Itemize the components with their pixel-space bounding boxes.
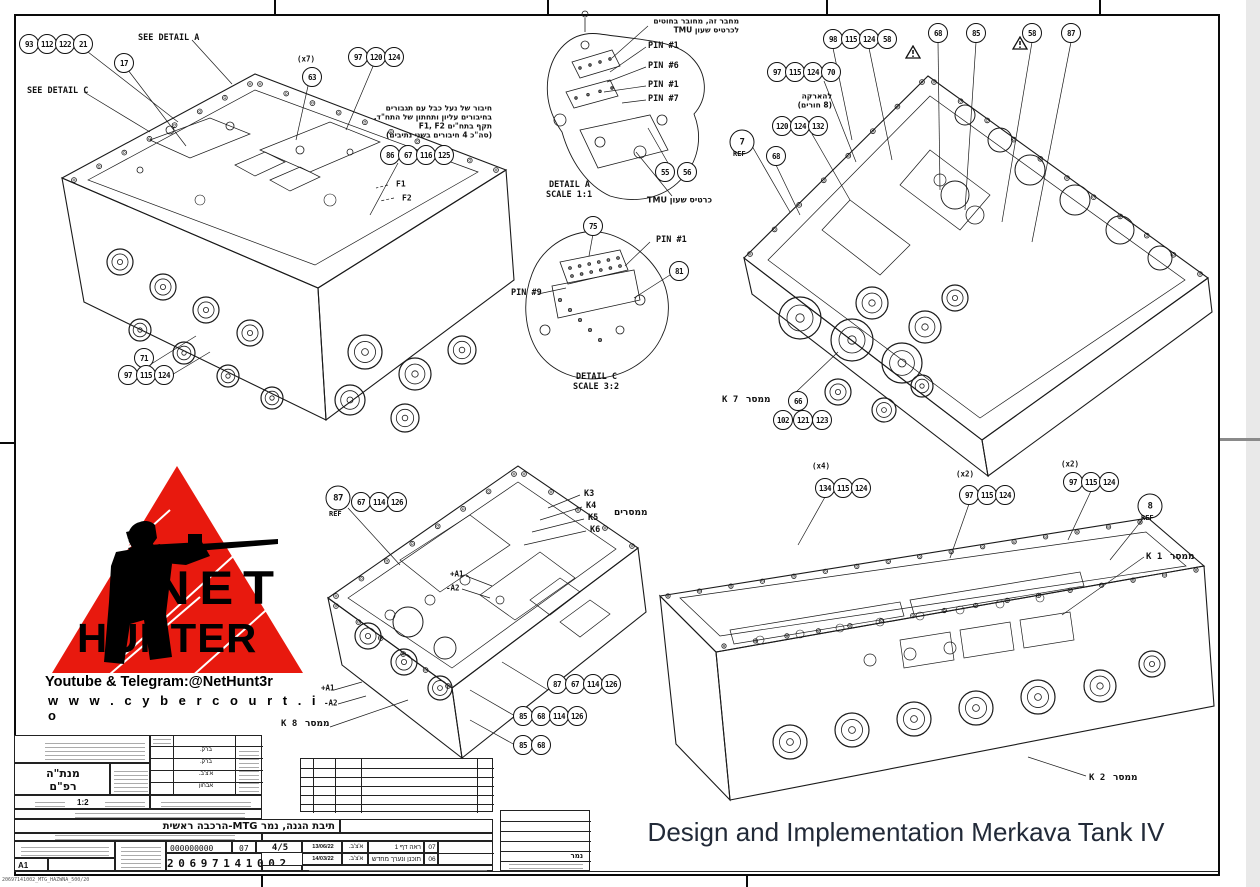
hebrew-annotation: בחיבורים עליון ותחתון של התח"ד. xyxy=(374,113,492,122)
callout-balloon: 115 xyxy=(1081,472,1101,492)
callout-balloon: 85 xyxy=(966,23,986,43)
drawing-number-cell: 2 0 6 9 7 1 4 1 0 0 2 xyxy=(166,853,262,871)
hebrew-annotation: לכרטיס שעון TMU xyxy=(674,26,739,35)
drawing-number: 2 0 6 9 7 1 4 1 0 0 2 xyxy=(167,857,263,870)
approvals-grid: ברק. ברק. א'צ'ב. אבחון xyxy=(150,735,262,795)
callout-balloon: 56 xyxy=(677,162,697,182)
hebrew-annotation: ממסר xyxy=(1170,552,1195,562)
cad-label: DETAIL A xyxy=(549,180,590,190)
callout-balloon: 75 xyxy=(583,216,603,236)
cad-label: REF xyxy=(1141,514,1154,522)
callout-balloon: 97 xyxy=(1063,472,1083,492)
micro-text xyxy=(45,740,145,760)
logo-word-hunter: HUNTER xyxy=(77,618,257,659)
callout-balloon: 58 xyxy=(877,29,897,49)
logo-word-net: NET xyxy=(153,564,284,611)
hebrew-annotation: ממסר xyxy=(1113,773,1138,783)
assembly-title-cell: תיבת הגנה, נמר MTG-הרכבה ראשית xyxy=(14,819,340,833)
callout-balloon: 124 xyxy=(1099,472,1119,492)
callout-balloon: 124 xyxy=(859,29,879,49)
callout-balloon: 134 xyxy=(815,478,835,498)
callout-balloon: 68 xyxy=(766,146,786,166)
cad-label: K4 xyxy=(586,501,596,511)
callout-balloon: 97 xyxy=(348,47,368,67)
callout-balloon: 126 xyxy=(567,706,587,726)
rev-sig-cell: א'צ'ב. xyxy=(342,853,368,865)
callout-balloon: 112 xyxy=(37,34,57,54)
callout-balloon: 102 xyxy=(773,410,793,430)
revision-signature: א'צ'ב. xyxy=(343,856,369,862)
approver-name: אבחון xyxy=(181,783,231,789)
callout-balloon: 126 xyxy=(601,674,621,694)
revision-date: 14/03/22 xyxy=(303,856,343,862)
approver-name: א'צ'ב. xyxy=(181,771,231,777)
callout-balloon: 114 xyxy=(583,674,603,694)
project-column: נמר xyxy=(500,810,590,871)
empty-cell xyxy=(48,858,115,871)
cad-label: SCALE 1:1 xyxy=(546,190,592,200)
micro-text xyxy=(75,812,245,818)
cad-label: (x2) xyxy=(1061,460,1079,469)
logo-tagline: Youtube & Telegram:@NetHunt3r xyxy=(45,674,273,690)
cad-label: PIN #6 xyxy=(648,61,679,71)
rev-cell: 07 xyxy=(232,841,256,853)
rev-date-cell: 13/06/22 xyxy=(302,841,342,853)
assembly-title: תיבת הגנה, נמר MTG-הרכבה ראשית xyxy=(163,821,335,832)
micro-text xyxy=(239,748,259,792)
callout-balloon: 124 xyxy=(851,478,871,498)
approver-name: ברק. xyxy=(181,747,231,753)
cad-label: -A2 xyxy=(446,584,460,593)
cad-label: REF xyxy=(329,510,342,518)
micro-text xyxy=(55,835,235,840)
revision-number: 06 xyxy=(425,856,439,863)
callout-balloon: 85 xyxy=(513,706,533,726)
callout-balloon: 67 xyxy=(351,492,371,512)
cad-label: DETAIL C xyxy=(576,372,617,382)
callout-balloon: 81 xyxy=(669,261,689,281)
callout-balloon: 87 xyxy=(547,674,567,694)
micro-text xyxy=(21,845,109,856)
unit-cell: מנת"ה רפ"ם xyxy=(14,763,110,795)
rev-num-cell: 07 xyxy=(424,841,438,853)
callout-balloon: 115 xyxy=(841,29,861,49)
revision-date: 13/06/22 xyxy=(303,844,343,850)
callout-balloon: 97 xyxy=(118,365,138,385)
callout-balloon: 120 xyxy=(772,116,792,136)
small-cell xyxy=(110,763,150,795)
callout-balloon: 124 xyxy=(790,116,810,136)
cad-label: (x7) xyxy=(297,55,315,64)
rev-date-cell: 14/03/22 xyxy=(302,853,342,865)
callout-balloon: 115 xyxy=(833,478,853,498)
callout-balloon: 116 xyxy=(416,145,436,165)
callout-balloon: 63 xyxy=(302,67,322,87)
cad-label: +A1 xyxy=(450,570,464,579)
small-cell xyxy=(14,833,262,841)
cad-label: +A1 xyxy=(321,684,335,693)
cad-label: K6 xyxy=(590,525,600,535)
callout-balloon: 124 xyxy=(803,62,823,82)
rev-sig-cell: א'צ'ב. xyxy=(342,841,368,853)
nethunter-watermark: NET HUNTER Youtube & Telegram:@NetHunt3r… xyxy=(40,452,330,722)
scale-cell: 1:2 xyxy=(14,795,150,809)
hebrew-annotation: (8 חורים) xyxy=(798,101,832,110)
notes-cell xyxy=(14,735,150,763)
revision-number: 07 xyxy=(425,844,439,851)
hebrew-annotation: תקף בתח"ים F1, F2 xyxy=(419,122,492,131)
cad-label: F2 xyxy=(402,194,412,203)
sheet-caption: Design and Implementation Merkava Tank I… xyxy=(628,817,1184,848)
project-name: נמר xyxy=(571,852,583,860)
callout-balloon: 121 xyxy=(793,410,813,430)
zeros-cell: 000000000 xyxy=(166,841,232,853)
cad-label: PIN #1 xyxy=(656,235,687,245)
sheet-format: A1 xyxy=(18,861,28,870)
cad-label: K 1 xyxy=(1146,552,1162,562)
hebrew-annotation: חיבור של נעל כבל עם תגבורים xyxy=(386,104,492,113)
scale-value: 1:2 xyxy=(77,798,89,807)
callout-balloon: 124 xyxy=(384,47,404,67)
empty-cell xyxy=(438,841,493,865)
callout-balloon: 115 xyxy=(977,485,997,505)
unit-name-line1: מנת"ה xyxy=(15,767,111,780)
sheet-number: 4/5 xyxy=(257,843,303,853)
micro-text xyxy=(35,799,65,807)
small-cell xyxy=(14,809,262,819)
title-block-bottom-line xyxy=(14,871,1218,872)
unit-name-line2: רפ"ם xyxy=(15,780,111,793)
callout-balloon: 97 xyxy=(767,62,787,82)
callout-balloon: 114 xyxy=(369,492,389,512)
micro-text xyxy=(509,864,583,869)
cad-label: PIN #1 xyxy=(648,41,679,51)
rev-value: 07 xyxy=(239,844,249,853)
callout-balloon: 68 xyxy=(531,706,551,726)
small-cell xyxy=(150,795,262,809)
callout-balloon: 68 xyxy=(531,735,551,755)
cad-label: K 8 xyxy=(281,719,297,729)
cad-label: SEE DETAIL C xyxy=(27,86,88,96)
callout-balloon: 70 xyxy=(821,62,841,82)
callout-balloon: 124 xyxy=(154,365,174,385)
callout-balloon: 123 xyxy=(812,410,832,430)
revision-signature: א'צ'ב. xyxy=(343,844,369,850)
micro-text xyxy=(153,738,171,744)
callout-balloon: 58 xyxy=(1022,23,1042,43)
callout-balloon: 17 xyxy=(114,53,134,73)
revision-table-empty xyxy=(300,758,493,812)
rev-desc-cell: תוכנן ונערך מחדש xyxy=(368,853,424,865)
empty-cell xyxy=(340,819,493,833)
cad-label: K 7 xyxy=(722,395,738,405)
callout-balloon: 93 xyxy=(19,34,39,54)
micro-text xyxy=(121,846,161,868)
hebrew-annotation: להארקה xyxy=(802,92,832,101)
small-cell xyxy=(115,841,166,871)
callout-balloon: 86 xyxy=(380,145,400,165)
callout-balloon: 132 xyxy=(808,116,828,136)
cad-label: K 2 xyxy=(1089,773,1105,783)
callout-balloon: 122 xyxy=(55,34,75,54)
callout-balloon: 55 xyxy=(655,162,675,182)
sheet-no-cell: 4/5 xyxy=(256,841,302,853)
cad-label: F1 xyxy=(396,180,406,189)
callout-balloon: 124 xyxy=(995,485,1015,505)
callout-balloon: 67 xyxy=(565,674,585,694)
callout-balloon: 125 xyxy=(434,145,454,165)
callout-balloon: 98 xyxy=(823,29,843,49)
hebrew-annotation: ממסר xyxy=(746,395,771,405)
cad-label: K3 xyxy=(584,489,594,499)
hebrew-annotation: כרטיס שעון TMU xyxy=(647,196,712,205)
revision-description: ראה דף 1 xyxy=(395,844,421,851)
small-cell xyxy=(262,833,493,841)
micro-text xyxy=(161,799,251,807)
micro-text xyxy=(114,768,148,792)
cad-label: REF xyxy=(733,150,746,158)
cad-label: PIN #9 xyxy=(511,288,542,298)
rev-desc-cell: ראה דף 1 xyxy=(368,841,424,853)
callout-balloon: 67 xyxy=(398,145,418,165)
cad-label: SEE DETAIL A xyxy=(138,33,199,43)
cad-label: SCALE 3:2 xyxy=(573,382,619,392)
micro-text xyxy=(105,799,145,807)
callout-balloon: 115 xyxy=(785,62,805,82)
revision-description: תוכנן ונערך מחדש xyxy=(372,856,421,863)
callout-balloon: 87 xyxy=(326,486,351,511)
callout-balloon: 97 xyxy=(959,485,979,505)
hebrew-annotation: ממסר xyxy=(305,719,330,729)
cad-label: PIN #1 xyxy=(648,80,679,90)
zeros-value: 000000000 xyxy=(170,844,213,853)
callout-balloon: 21 xyxy=(73,34,93,54)
hebrew-annotation: (סה"כ 4 חיבורים בשני נתיבים) xyxy=(386,131,492,140)
callout-balloon: 66 xyxy=(788,391,808,411)
rev-num-cell: 06 xyxy=(424,853,438,865)
footer-filename: 20697141002_MTG_HAZWNA_500/20 xyxy=(2,877,89,883)
callout-balloon: 85 xyxy=(513,735,533,755)
approver-name: ברק. xyxy=(181,759,231,765)
callout-balloon: 126 xyxy=(387,492,407,512)
cad-label: K5 xyxy=(588,513,598,523)
format-cell: A1 xyxy=(14,858,48,871)
small-cell xyxy=(14,841,115,858)
callout-balloon: 87 xyxy=(1061,23,1081,43)
hebrew-annotation: ממסרים xyxy=(614,508,647,518)
callout-balloon: 120 xyxy=(366,47,386,67)
cad-label: PIN #7 xyxy=(648,94,679,104)
cad-label: (x4) xyxy=(812,462,830,471)
cad-label: (x2) xyxy=(956,470,974,479)
hebrew-annotation: מחבר זה, מחובר בחוטים xyxy=(653,17,739,26)
callout-balloon: 68 xyxy=(928,23,948,43)
callout-balloon: 115 xyxy=(136,365,156,385)
drawing-sheet: { "caption": "Design and Implementation … xyxy=(0,0,1260,887)
callout-balloon: 114 xyxy=(549,706,569,726)
cad-label: -A2 xyxy=(324,699,338,708)
